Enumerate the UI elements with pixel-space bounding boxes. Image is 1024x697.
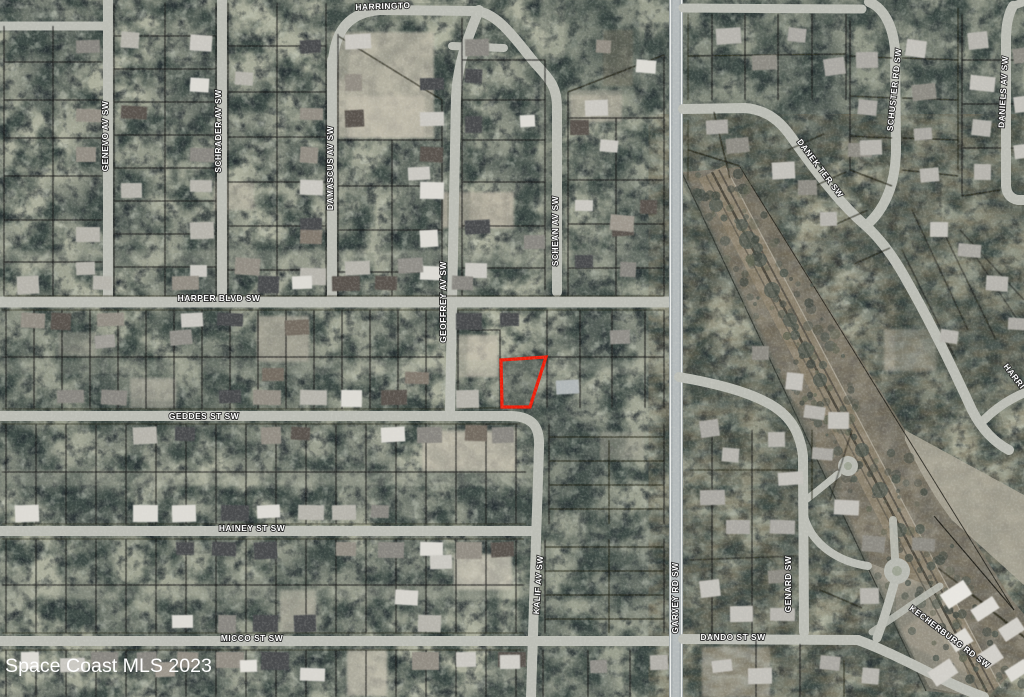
svg-text:Space Coast MLS 2023: Space Coast MLS 2023: [5, 655, 212, 677]
